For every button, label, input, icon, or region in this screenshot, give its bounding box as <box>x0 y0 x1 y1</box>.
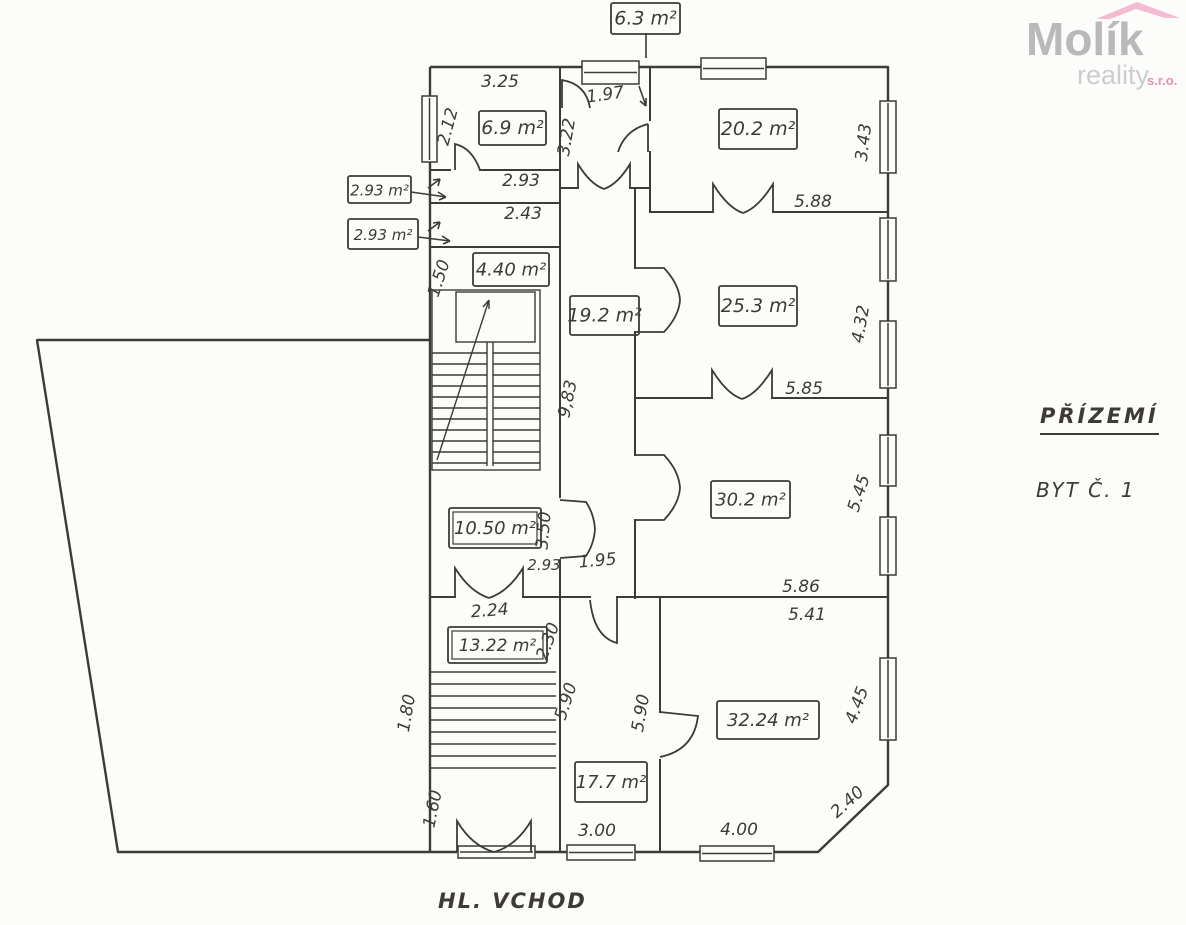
room-area-label: 20.2 m² <box>721 118 796 140</box>
room-area-label: 4.40 m² <box>476 260 547 281</box>
staircase-lower <box>429 672 556 768</box>
dimension-label: 5.88 <box>794 192 832 212</box>
room-area-label: 2.93 m² <box>350 182 409 200</box>
room-area-box: 4.40 m² <box>473 253 549 286</box>
dimension-label: 3.00 <box>578 821 616 841</box>
dimension-label: 2.24 <box>470 600 509 623</box>
doors <box>455 80 773 852</box>
dimension-label: 2.43 <box>504 204 542 224</box>
floorplan-page: 6.3 m²6.9 m²2.93 m²2.93 m²4.40 m²19.2 m²… <box>0 0 1186 925</box>
dimension-label: 1.60 <box>419 788 446 829</box>
entrance-label: HL. VCHOD <box>438 889 587 913</box>
dimension-label: 1.95 <box>578 549 617 572</box>
dimension-label: 2.40 <box>827 782 869 822</box>
room-area-box: 30.2 m² <box>711 481 790 518</box>
room-area-box: 17.7 m² <box>575 762 647 802</box>
room-area-box: 20.2 m² <box>719 109 797 149</box>
dimension-label: 2.12 <box>434 106 463 148</box>
dimension-label: 2.93 <box>527 556 560 574</box>
unit-title: BYT Č. 1 <box>1036 478 1136 502</box>
dimension-label: 1.50 <box>424 257 455 299</box>
dimension-label: 3.25 <box>481 72 519 92</box>
dimension-label: 1.80 <box>394 693 420 734</box>
room-area-label: 2.93 m² <box>354 226 413 244</box>
room-area-label: 17.7 m² <box>576 772 647 793</box>
dimension-label: 5.90 <box>628 693 654 734</box>
outer-walls <box>37 67 888 852</box>
room-area-label: 30.2 m² <box>715 490 786 511</box>
room-area-box: 2.93 m² <box>348 219 418 249</box>
room-area-box: 25.3 m² <box>719 286 797 326</box>
dimension-label: 5.45 <box>844 472 875 514</box>
floorplan-drawing: 6.3 m²6.9 m²2.93 m²2.93 m²4.40 m²19.2 m²… <box>0 0 1186 925</box>
dimension-label: 1.97 <box>585 82 625 107</box>
room-area-label: 32.24 m² <box>727 710 809 731</box>
logo-tagline: reality <box>1077 60 1149 91</box>
dimension-label: 3.50 <box>532 511 555 550</box>
room-area-label: 6.9 m² <box>481 117 544 139</box>
logo-suffix: s.r.o. <box>1147 73 1177 88</box>
dimension-label: 5.86 <box>782 577 820 597</box>
room-area-label: 10.50 m² <box>454 518 536 539</box>
dimension-label: 9,83 <box>554 378 581 419</box>
dimension-label: 4.32 <box>848 304 874 345</box>
dimension-label: 3.22 <box>554 117 580 158</box>
room-area-box: 19.2 m² <box>567 296 642 335</box>
room-area-box: 10.50 m² <box>449 508 541 548</box>
room-area-label: 6.3 m² <box>614 8 677 30</box>
room-area-box: 13.22 m² <box>448 627 547 663</box>
dimension-label: 5.85 <box>785 379 823 399</box>
dimension-label: 4.00 <box>720 820 758 840</box>
room-area-label: 19.2 m² <box>567 305 642 327</box>
room-area-box: 6.9 m² <box>479 111 546 145</box>
dimension-label: 5.41 <box>788 605 826 625</box>
floor-title: PŘÍZEMÍ <box>1040 404 1159 435</box>
dimension-label: 5.90 <box>551 680 582 722</box>
room-area-label: 25.3 m² <box>721 295 796 317</box>
room-area-box: 32.24 m² <box>717 701 819 739</box>
dimension-label: 2.93 <box>502 171 540 191</box>
room-area-label: 13.22 m² <box>459 636 537 656</box>
room-area-box: 6.3 m² <box>611 3 680 34</box>
logo-brand: Molík <box>1026 12 1144 66</box>
dimension-label: 4.45 <box>841 684 873 726</box>
staircase-upper <box>432 290 540 470</box>
room-area-box: 2.93 m² <box>348 176 411 203</box>
dimension-label: 3.43 <box>852 122 876 162</box>
